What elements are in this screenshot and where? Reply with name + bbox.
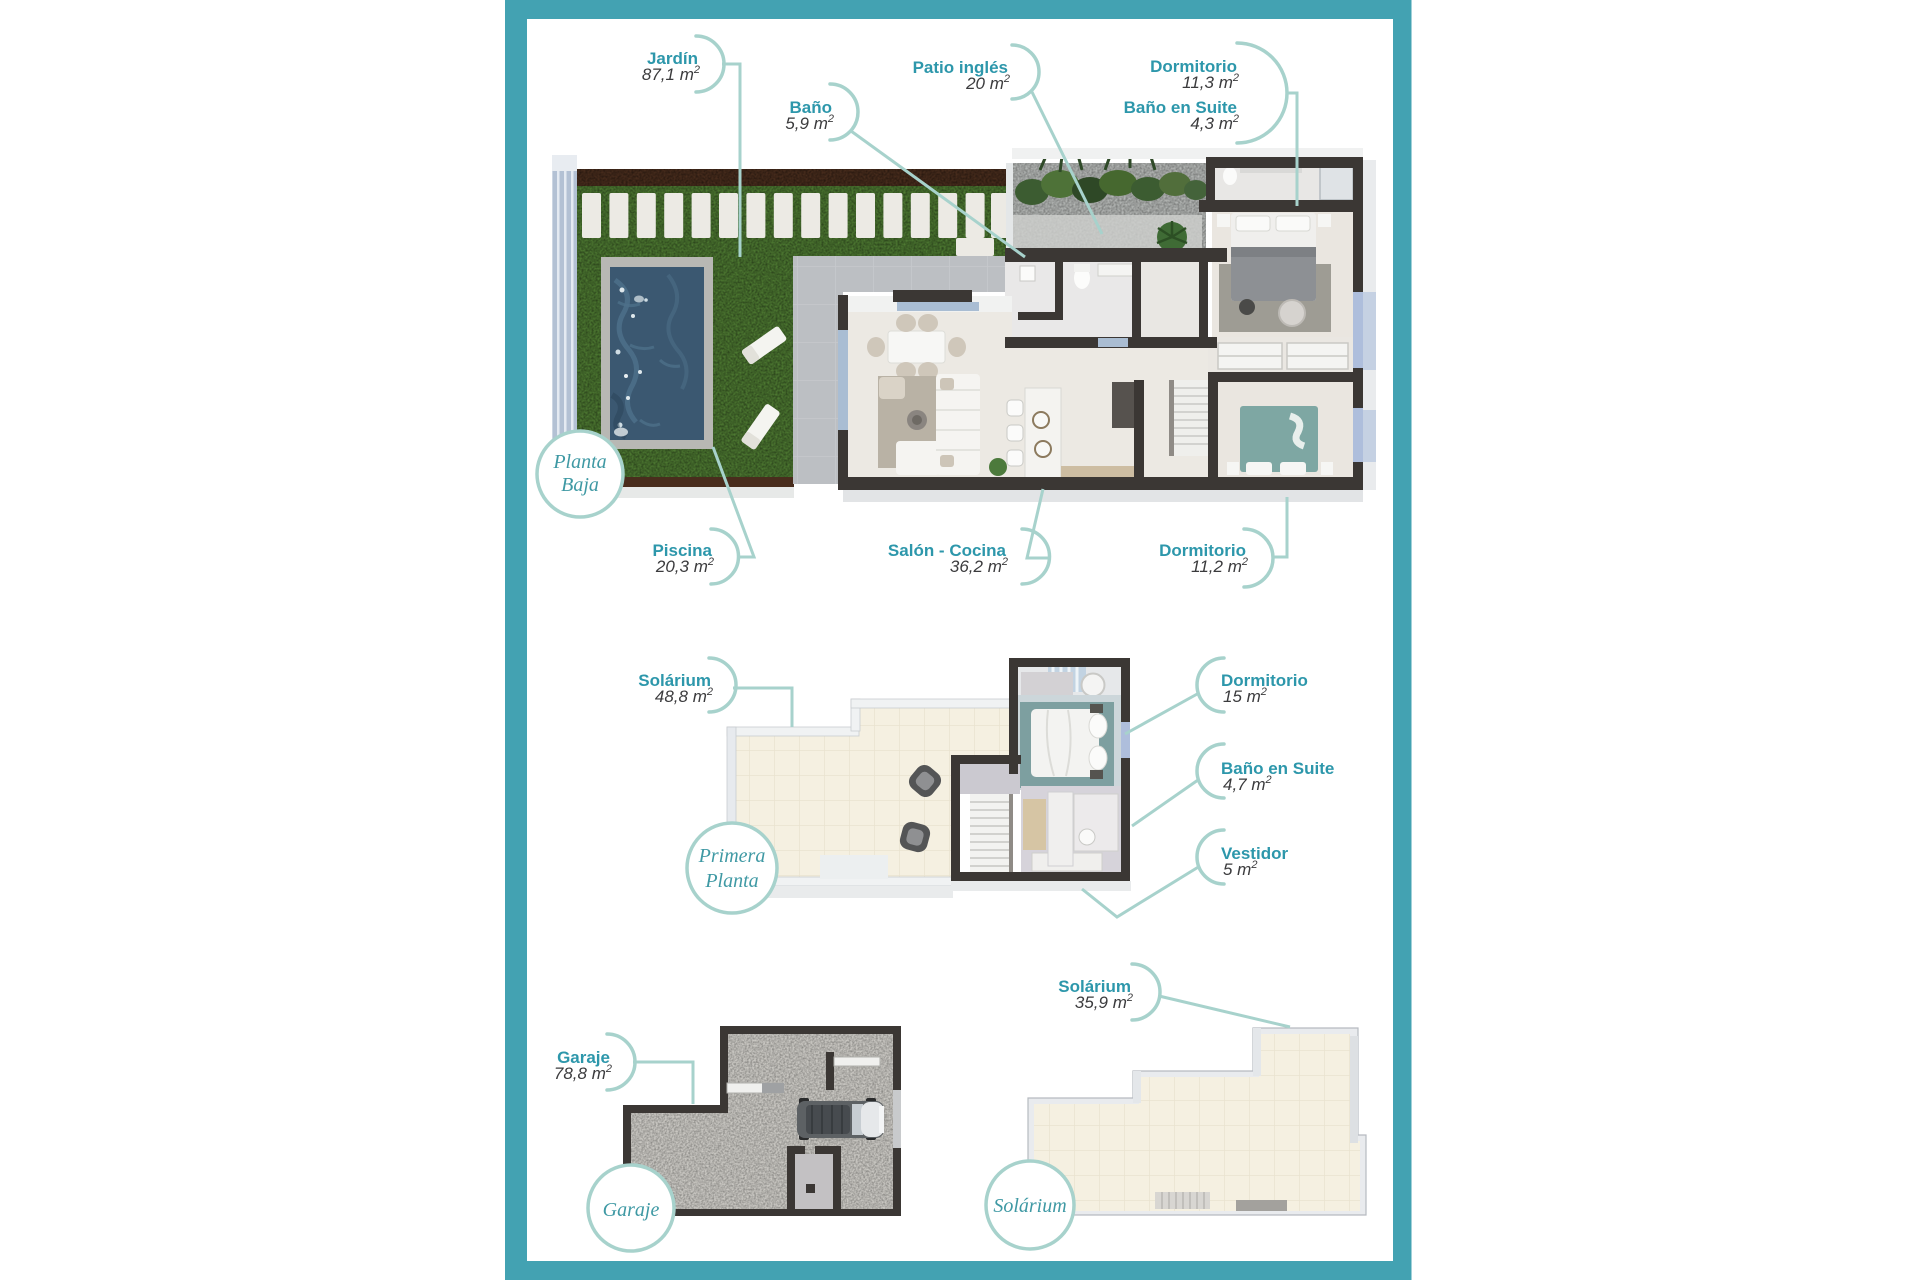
- svg-text:Garaje: Garaje: [603, 1199, 660, 1221]
- svg-text:Planta: Planta: [552, 451, 606, 473]
- svg-text:Baja: Baja: [561, 474, 599, 496]
- svg-text:87,1 m2: 87,1 m2: [642, 64, 700, 84]
- svg-text:4,3 m2: 4,3 m2: [1190, 113, 1239, 133]
- svg-text:4,7 m2: 4,7 m2: [1223, 774, 1272, 794]
- svg-text:35,9 m2: 35,9 m2: [1075, 992, 1133, 1012]
- svg-text:20,3 m2: 20,3 m2: [655, 556, 714, 576]
- svg-text:11,2 m2: 11,2 m2: [1191, 556, 1248, 576]
- svg-text:Solárium: Solárium: [993, 1195, 1066, 1217]
- svg-text:36,2 m2: 36,2 m2: [950, 556, 1008, 576]
- svg-text:20 m2: 20 m2: [965, 73, 1010, 93]
- svg-text:Planta: Planta: [704, 870, 758, 892]
- svg-text:15 m2: 15 m2: [1223, 686, 1267, 706]
- svg-text:5,9 m2: 5,9 m2: [785, 113, 834, 133]
- svg-text:48,8 m2: 48,8 m2: [655, 686, 713, 706]
- svg-text:11,3 m2: 11,3 m2: [1182, 72, 1239, 92]
- svg-text:78,8 m2: 78,8 m2: [554, 1063, 612, 1083]
- svg-text:Primera: Primera: [698, 845, 766, 867]
